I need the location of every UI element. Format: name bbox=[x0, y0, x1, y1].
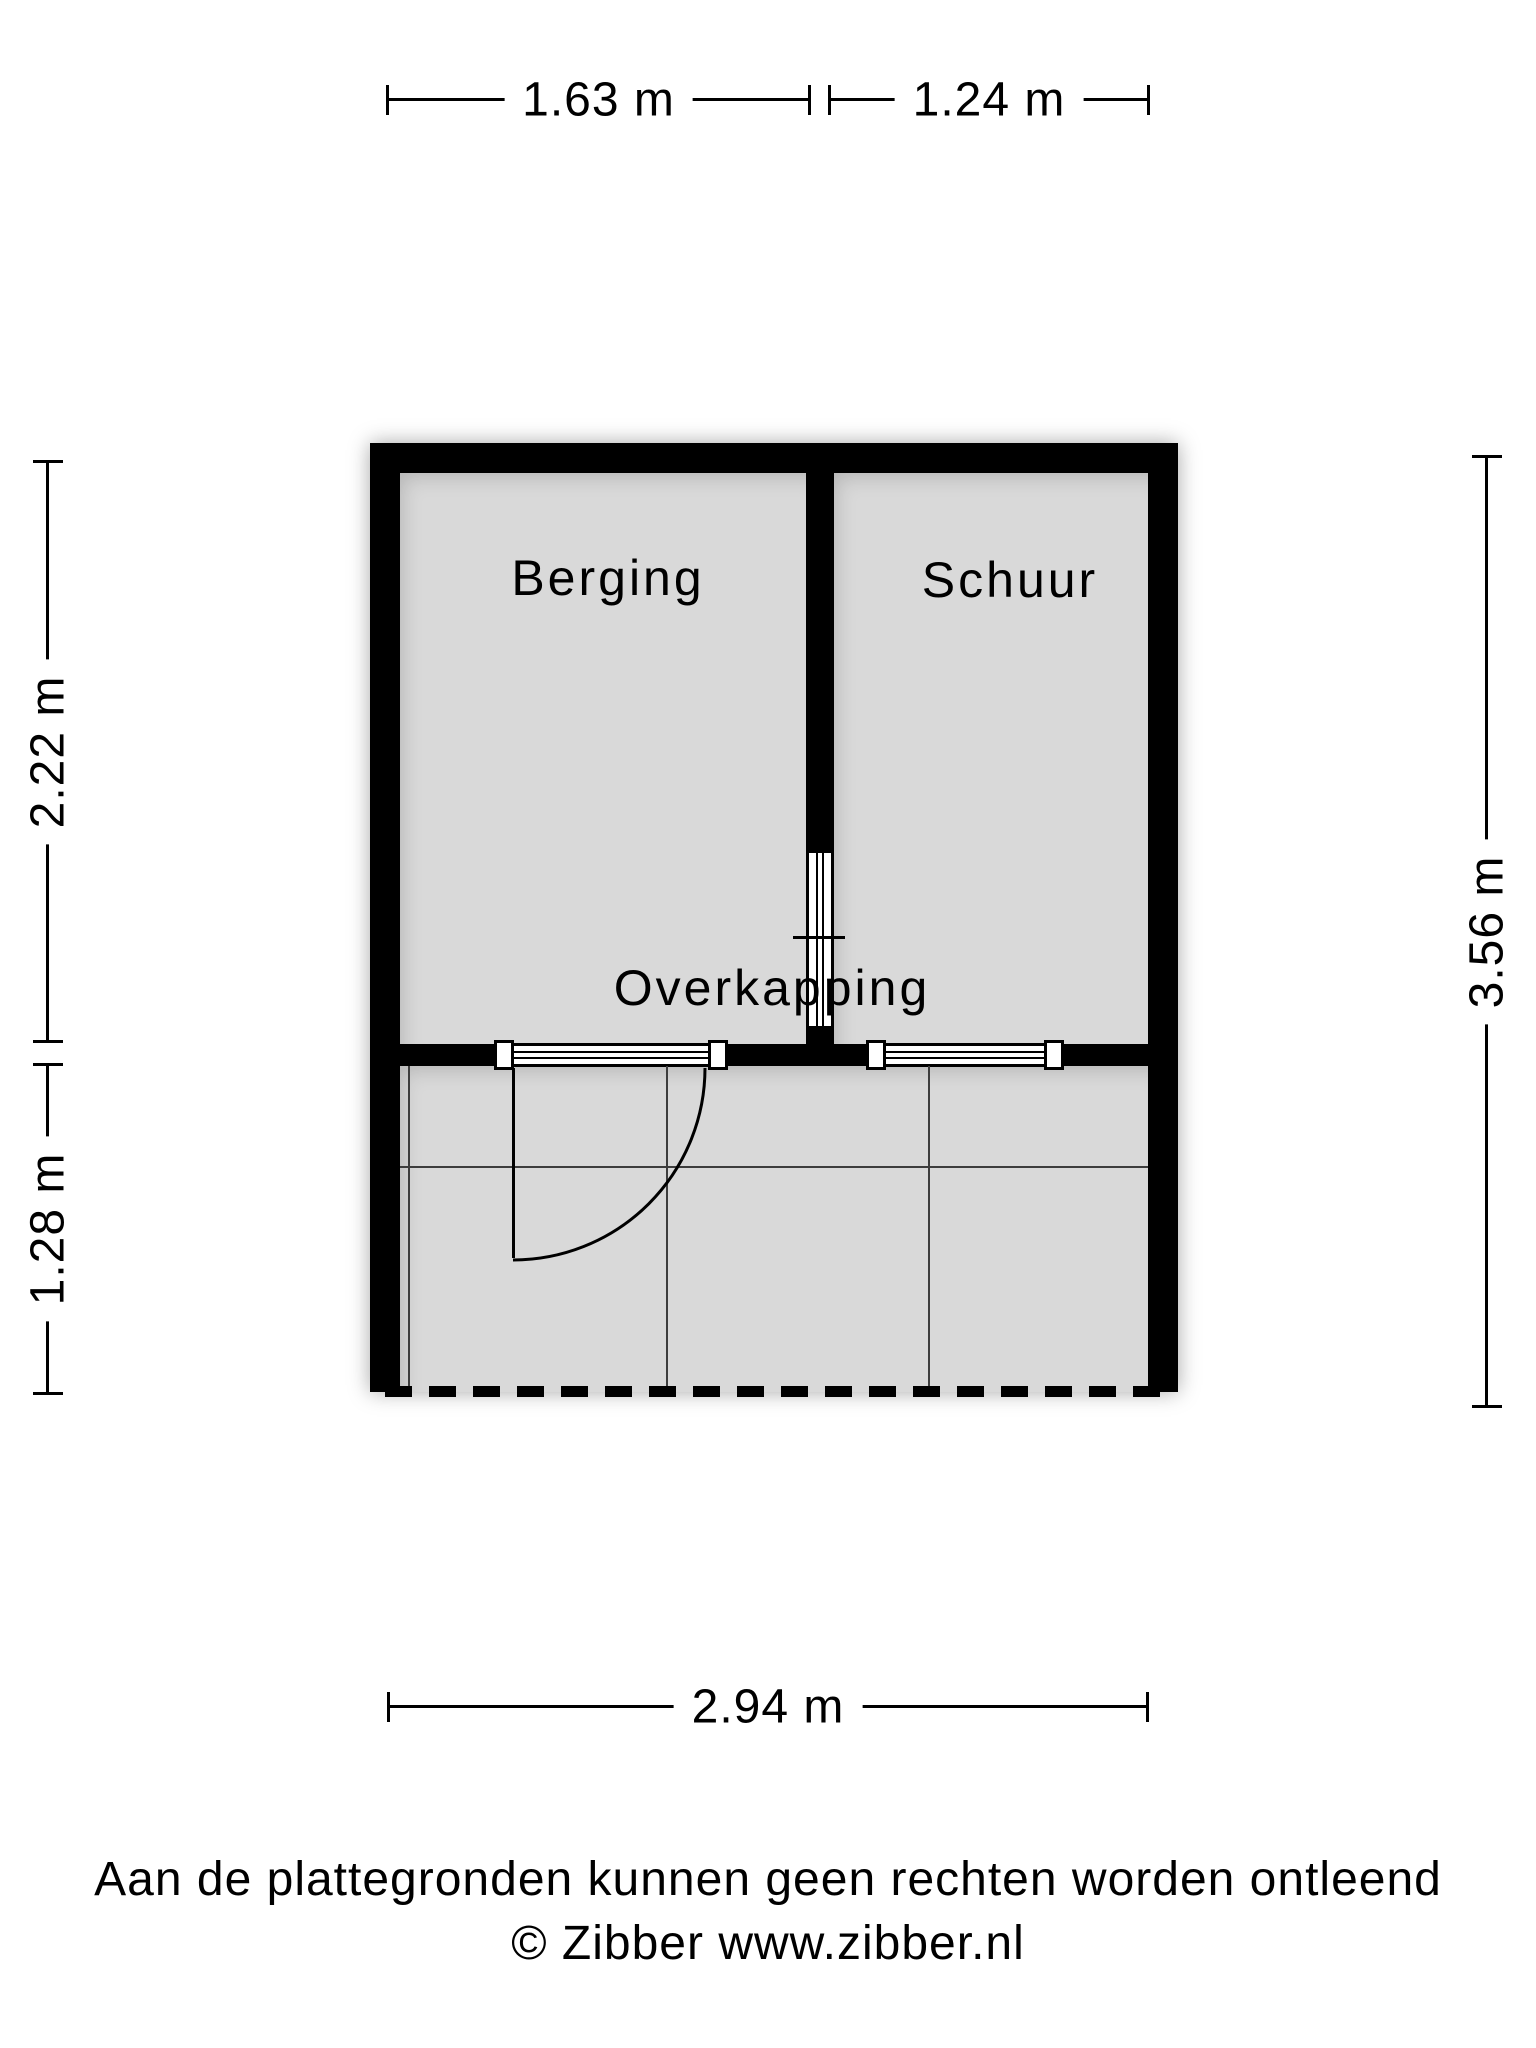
wall-mid-segment-center bbox=[728, 1044, 866, 1066]
wall-mid-segment-right bbox=[1064, 1044, 1148, 1066]
wall-interior-vertical-stub bbox=[806, 1026, 834, 1044]
dimension-bottom: 2.94 m bbox=[387, 1692, 1149, 1722]
window-schuur-cap-right bbox=[1044, 1040, 1064, 1070]
window-sill-tick bbox=[793, 936, 845, 939]
overkapping-gridline-vertical-2 bbox=[666, 1066, 668, 1386]
wall-right bbox=[1148, 443, 1178, 1392]
dimension-tick bbox=[1147, 85, 1150, 115]
dimension-tick bbox=[808, 85, 811, 115]
window-glass-lines bbox=[886, 1051, 1044, 1059]
footer-disclaimer: Aan de plattegronden kunnen geen rechten… bbox=[0, 1852, 1536, 1907]
wall-left bbox=[370, 443, 400, 1392]
door-leaf bbox=[512, 1068, 515, 1258]
dimension-label-left-upper: 2.22 m bbox=[21, 659, 76, 844]
overkapping-gridline-vertical-3 bbox=[928, 1066, 930, 1386]
dimension-tick bbox=[1472, 1405, 1502, 1408]
window-schuur-cap-left bbox=[866, 1040, 886, 1070]
dimension-top-left: 1.63 m bbox=[386, 85, 811, 115]
dimension-label-right: 3.56 m bbox=[1460, 839, 1515, 1024]
wall-top bbox=[370, 443, 1178, 473]
dimension-top-right: 1.24 m bbox=[828, 85, 1150, 115]
wall-interior-vertical bbox=[806, 473, 834, 853]
dimension-label-top-right: 1.24 m bbox=[895, 73, 1084, 128]
window-glass-lines bbox=[514, 1051, 708, 1059]
room-label-schuur: Schuur bbox=[922, 551, 1098, 609]
window-berging-cap-right bbox=[708, 1040, 728, 1070]
dimension-tick bbox=[1146, 1692, 1149, 1722]
dimension-label-bottom: 2.94 m bbox=[674, 1680, 863, 1735]
footer-copyright: © Zibber www.zibber.nl bbox=[0, 1916, 1536, 1971]
dimension-label-top-left: 1.63 m bbox=[504, 73, 693, 128]
window-berging-cap-left bbox=[494, 1040, 514, 1070]
window-schuur bbox=[886, 1043, 1044, 1067]
overkapping-gridline-vertical-1 bbox=[408, 1066, 410, 1386]
dimension-left-lower: 1.28 m bbox=[33, 1063, 63, 1395]
dimension-left-upper: 2.22 m bbox=[33, 460, 63, 1043]
dimension-tick bbox=[33, 1392, 63, 1395]
room-label-berging: Berging bbox=[511, 549, 704, 607]
dimension-tick bbox=[33, 1040, 63, 1043]
dimension-label-left-lower: 1.28 m bbox=[21, 1137, 76, 1322]
open-edge-dashed-line bbox=[385, 1386, 1163, 1397]
dimension-right: 3.56 m bbox=[1472, 455, 1502, 1408]
room-label-overkapping: Overkapping bbox=[614, 959, 931, 1017]
floorplan-canvas: 1.63 m 1.24 m 2.22 m 1.28 m 3.56 m bbox=[0, 0, 1536, 2048]
wall-mid-segment-left bbox=[400, 1044, 495, 1066]
window-berging bbox=[514, 1043, 708, 1067]
